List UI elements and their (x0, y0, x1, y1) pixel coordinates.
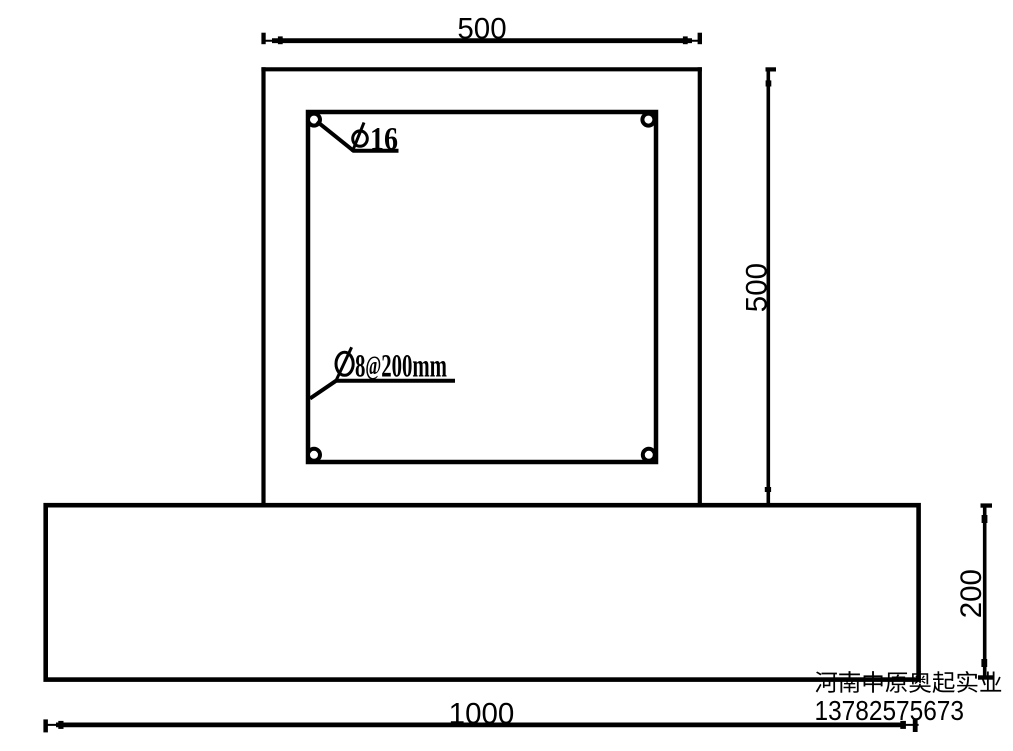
svg-text:8@200mm: 8@200mm (355, 349, 447, 385)
svg-text:200: 200 (955, 569, 988, 618)
svg-text:1000: 1000 (449, 698, 515, 731)
svg-text:500: 500 (457, 12, 506, 45)
svg-text:500: 500 (740, 263, 773, 312)
svg-text:13782575673: 13782575673 (815, 695, 965, 726)
svg-text:16: 16 (370, 122, 398, 158)
